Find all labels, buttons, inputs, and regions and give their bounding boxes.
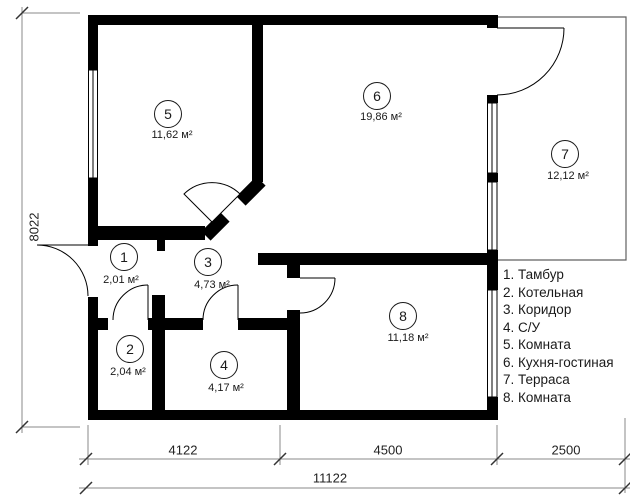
wall-room2-top-left [98,318,108,330]
room-7-area: 12,12 м² [547,170,589,182]
wall-left-upper [88,15,98,70]
wall-right-bottom-block [487,397,498,410]
wall-room8-left-lower [287,310,300,410]
room-legend: 1. Тамбур 2. Котельная 3. Коридор 4. С/У… [503,266,614,406]
wall-diagonal-lower [206,217,225,236]
room-4-badge: 4 [210,351,238,379]
room-7-number: 7 [561,147,569,161]
terrace-door-arc [497,28,564,95]
room-4-number: 4 [220,358,228,372]
wall-right-mullion [487,173,498,182]
room-1-area: 2,01 м² [103,274,139,286]
room-4-area: 4,17 м² [208,382,244,394]
wall-top [88,15,498,25]
wall-room8-left-upper [287,265,300,278]
room-2-number: 2 [126,342,134,356]
legend-item-1: 1. Тамбур [503,266,614,284]
wall-room2-room4-top [148,318,203,330]
room-6-badge: 6 [363,82,391,110]
room-1-number: 1 [120,250,128,264]
wall-left-lower [88,297,98,410]
dimension-left-height: 8022 [27,213,42,242]
room-8-area: 11,18 м² [388,332,429,344]
legend-item-4: 4. С/У [503,319,614,337]
room-8-number: 8 [399,309,407,323]
room2-door-arc [113,285,148,320]
dimension-segment-1: 4122 [169,443,198,458]
dimension-segment-2: 4500 [374,443,403,458]
wall-stub-room1-corridor [157,240,165,251]
legend-item-5: 5. Комната [503,336,614,354]
dimension-segment-3: 2500 [552,443,581,458]
legend-item-3: 3. Коридор [503,301,614,319]
legend-item-7: 7. Терраса [503,371,614,389]
wall-room2-room4-divider [152,330,165,410]
room-6-area: 19,86 м² [360,111,402,123]
floor-plan-drawing: 1 2 3 4 5 6 7 8 2,01 м² 2,04 м² 4,73 м² … [0,0,630,502]
legend-item-2: 2. Котельная [503,284,614,302]
wall-bottom [88,410,498,420]
floor-plan-canvas [0,0,630,502]
wall-room8-top [258,253,487,265]
dimension-total-width: 11122 [313,471,347,486]
wall-block-room1-room2 [152,295,165,318]
wall-diagonal-upper [241,181,261,201]
wall-room5-room6 [252,25,263,182]
room-1-badge: 1 [110,243,138,271]
room-2-badge: 2 [116,335,144,363]
entrance-door-arc [37,245,88,296]
legend-item-8: 8. Комната [503,389,614,407]
room-7-badge: 7 [551,140,579,168]
wall-left-middle [88,178,98,246]
terrace-outline [498,17,626,260]
room8-door-arc [300,278,335,313]
dimension-ticks [16,7,630,494]
room-5-number: 5 [164,107,172,121]
room-3-number: 3 [204,255,212,269]
room-6-number: 6 [373,89,381,103]
wall-right-block2 [487,95,498,103]
room5-door-fan [184,183,240,222]
wall-right-block3 [487,250,498,290]
wall-right-top-block [487,15,498,28]
room-2-area: 2,04 м² [110,366,146,378]
room-8-badge: 8 [389,302,417,330]
wall-below-room5 [98,226,205,240]
room-3-badge: 3 [194,248,222,276]
room-5-badge: 5 [154,100,182,128]
legend-item-6: 6. Кухня-гостиная [503,354,614,372]
room-5-area: 11,62 м² [152,129,193,141]
walls [88,15,498,420]
room-3-area: 4,73 м² [194,279,230,291]
